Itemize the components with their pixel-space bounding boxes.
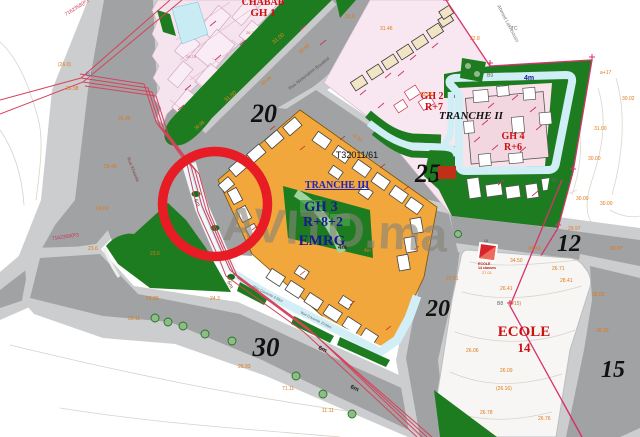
svg-text:R+8+2: R+8+2 — [303, 215, 343, 230]
svg-text:28.97: 28.97 — [610, 246, 623, 252]
svg-text:25: 25 — [414, 159, 441, 188]
svg-text:23.11: 23.11 — [128, 316, 140, 322]
svg-text:30.00: 30.00 — [588, 156, 601, 162]
svg-text:32.8: 32.8 — [470, 36, 480, 42]
svg-text:25.49: 25.49 — [104, 164, 117, 170]
svg-text:26.75: 26.75 — [186, 54, 197, 59]
svg-text:GH 3: GH 3 — [304, 199, 337, 215]
svg-text:24.3: 24.3 — [210, 296, 220, 302]
svg-text:B9: B9 — [487, 73, 493, 79]
svg-text:ECOLE: ECOLE — [498, 324, 551, 340]
svg-text:T32011/61: T32011/61 — [336, 150, 378, 160]
svg-text:B8: B8 — [497, 301, 503, 307]
svg-text:27.01: 27.01 — [446, 276, 459, 282]
svg-text:(26.16): (26.16) — [496, 386, 512, 392]
svg-text:28.41: 28.41 — [560, 278, 573, 284]
svg-text:30.00: 30.00 — [600, 201, 613, 207]
svg-text:(26.0): (26.0) — [58, 62, 71, 68]
svg-text:TC: TC — [511, 26, 518, 32]
svg-text:33.96: 33.96 — [420, 92, 433, 98]
svg-text:14: 14 — [518, 340, 532, 355]
svg-text:23.6: 23.6 — [88, 246, 98, 252]
svg-text:4m: 4m — [524, 75, 534, 82]
svg-text:26.46: 26.46 — [118, 116, 131, 122]
svg-text:29.97: 29.97 — [568, 226, 581, 232]
svg-text:L8: L8 — [484, 239, 488, 243]
svg-text:4m: 4m — [338, 245, 347, 251]
svg-text:20: 20 — [250, 99, 277, 128]
svg-text:TRANCHE III: TRANCHE III — [305, 180, 369, 191]
svg-text:30: 30 — [252, 332, 281, 362]
svg-text:CHABAB: CHABAB — [242, 0, 285, 8]
svg-text:26.06: 26.06 — [466, 348, 479, 354]
svg-text:26.41: 26.41 — [500, 286, 513, 292]
svg-text:71.11: 71.11 — [282, 386, 294, 392]
svg-text:R+6: R+6 — [504, 142, 522, 153]
svg-text:34.50: 34.50 — [510, 258, 523, 264]
svg-text:11.11: 11.11 — [322, 408, 334, 414]
svg-text:28.02: 28.02 — [592, 292, 605, 298]
svg-text:23.09: 23.09 — [146, 296, 159, 302]
svg-text:26.78: 26.78 — [480, 410, 493, 416]
svg-text:31.00: 31.00 — [594, 126, 607, 132]
svg-text:GH 1: GH 1 — [250, 7, 275, 19]
svg-text:31.46: 31.46 — [380, 26, 393, 32]
svg-text:B7: B7 — [552, 178, 558, 184]
svg-text:15: 15 — [601, 357, 625, 383]
svg-text:30.00: 30.00 — [576, 196, 589, 202]
svg-text:23.6: 23.6 — [150, 251, 160, 257]
svg-text:26.71: 26.71 — [552, 266, 565, 272]
svg-text:34.43: 34.43 — [528, 246, 541, 252]
svg-text:GH 4: GH 4 — [501, 131, 524, 142]
svg-text:28.00: 28.00 — [596, 328, 609, 334]
svg-text:26.93: 26.93 — [238, 364, 251, 370]
svg-text:26.09: 26.09 — [500, 368, 513, 374]
svg-text:27.01: 27.01 — [482, 270, 493, 275]
svg-text:4m: 4m — [364, 248, 371, 254]
svg-text:TRANCHE II: TRANCHE II — [439, 110, 504, 122]
svg-text:26.98: 26.98 — [66, 86, 79, 92]
svg-text:31.0: 31.0 — [345, 14, 355, 20]
svg-text:a+17: a+17 — [600, 70, 611, 76]
svg-text:B1: B1 — [86, 72, 94, 78]
svg-text:12: 12 — [557, 231, 581, 257]
svg-text:20: 20 — [425, 296, 450, 322]
svg-text:26.76: 26.76 — [538, 416, 551, 422]
svg-text:24.69: 24.69 — [96, 206, 109, 212]
svg-text:30.02: 30.02 — [622, 96, 635, 102]
